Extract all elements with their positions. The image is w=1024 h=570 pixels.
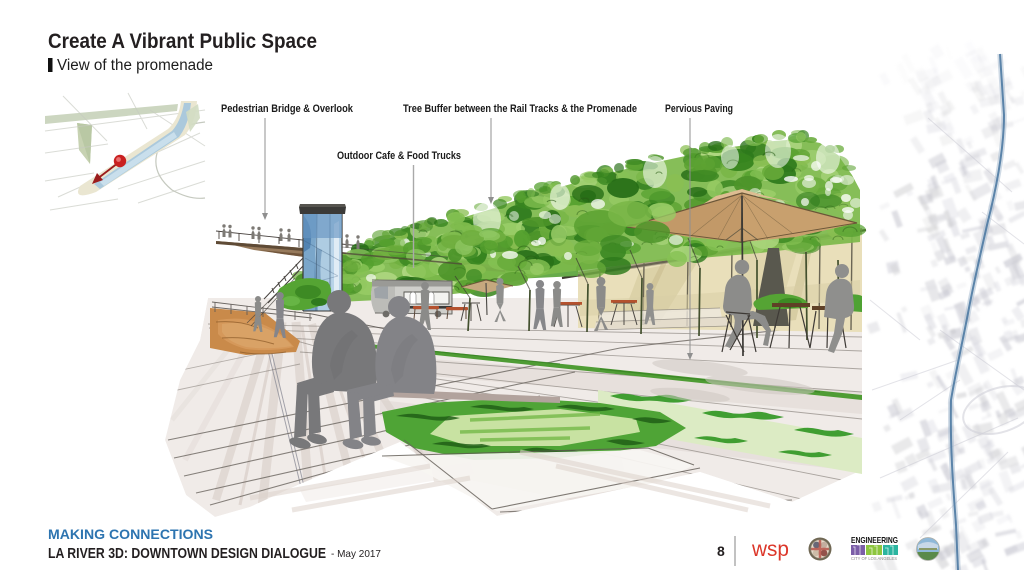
svg-text:- May 2017: - May 2017: [331, 548, 381, 560]
svg-text:CITY OF LOS ANGELES: CITY OF LOS ANGELES: [851, 556, 897, 561]
svg-text:wsp: wsp: [751, 538, 789, 561]
svg-text:Create A Vibrant Public Space: Create A Vibrant Public Space: [48, 30, 317, 53]
svg-text:Tree Buffer between the Rail T: Tree Buffer between the Rail Tracks & th…: [403, 103, 637, 115]
svg-text:Pedestrian Bridge & Overlook: Pedestrian Bridge & Overlook: [221, 103, 354, 115]
svg-text:MAKING CONNECTIONS: MAKING CONNECTIONS: [48, 527, 213, 542]
svg-text:Outdoor Cafe & Food Trucks: Outdoor Cafe & Food Trucks: [337, 150, 461, 162]
svg-text:View of the promenade: View of the promenade: [57, 57, 213, 74]
svg-text:Pervious Paving: Pervious Paving: [665, 103, 733, 115]
svg-text:8: 8: [717, 543, 725, 559]
svg-text:LA RIVER 3D: DOWNTOWN DESIGN D: LA RIVER 3D: DOWNTOWN DESIGN DIALOGUE: [48, 546, 326, 562]
svg-text:ENGINEERING: ENGINEERING: [851, 536, 898, 545]
